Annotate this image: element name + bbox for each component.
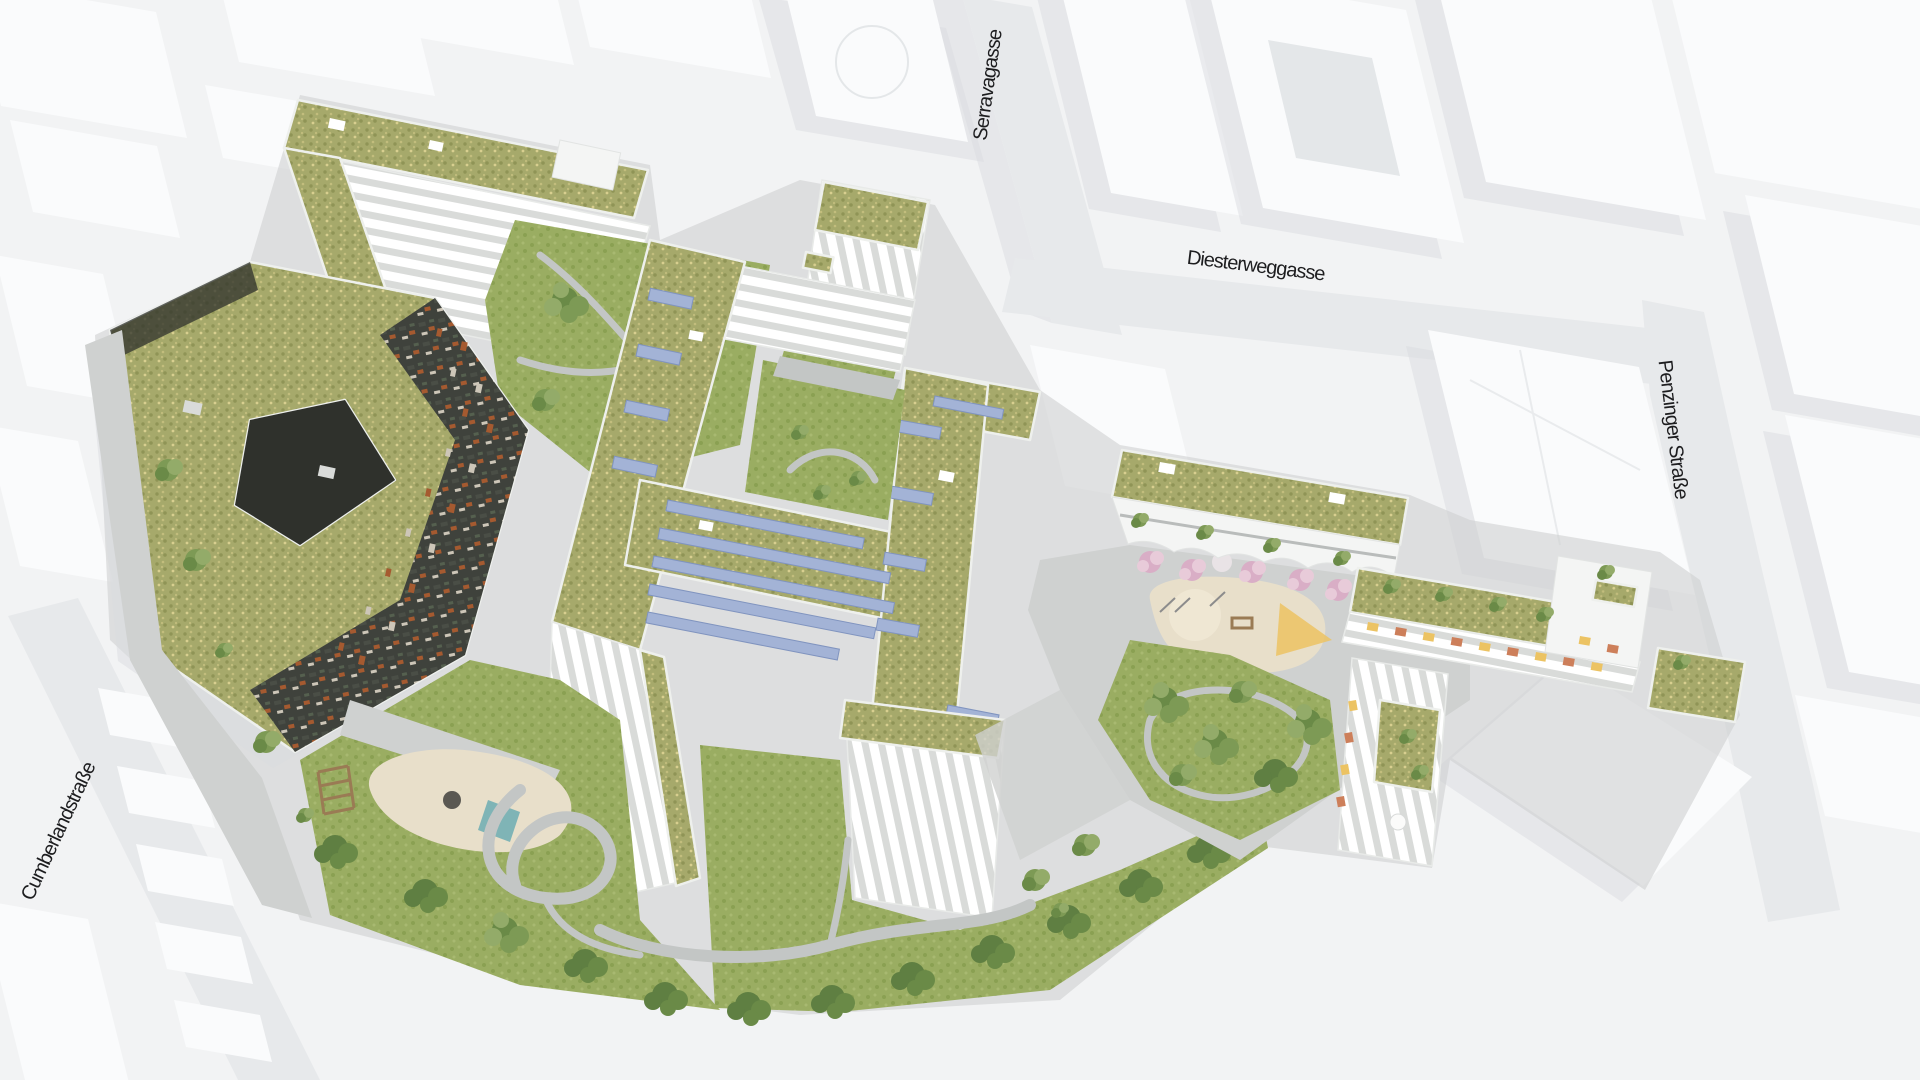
cylindrical-building — [836, 26, 908, 98]
sand-circle — [1169, 589, 1221, 641]
aerial-rendering: Serravagasse Diesterweggasse Penzinger S… — [0, 0, 1920, 1080]
parasol — [1390, 814, 1406, 830]
fire-pit — [443, 791, 461, 809]
central-courtyard — [745, 356, 905, 520]
east-green-roof — [1648, 648, 1745, 722]
scene-svg: Serravagasse Diesterweggasse Penzinger S… — [0, 0, 1920, 1080]
south-wing-courtyard-roof — [1374, 700, 1440, 792]
